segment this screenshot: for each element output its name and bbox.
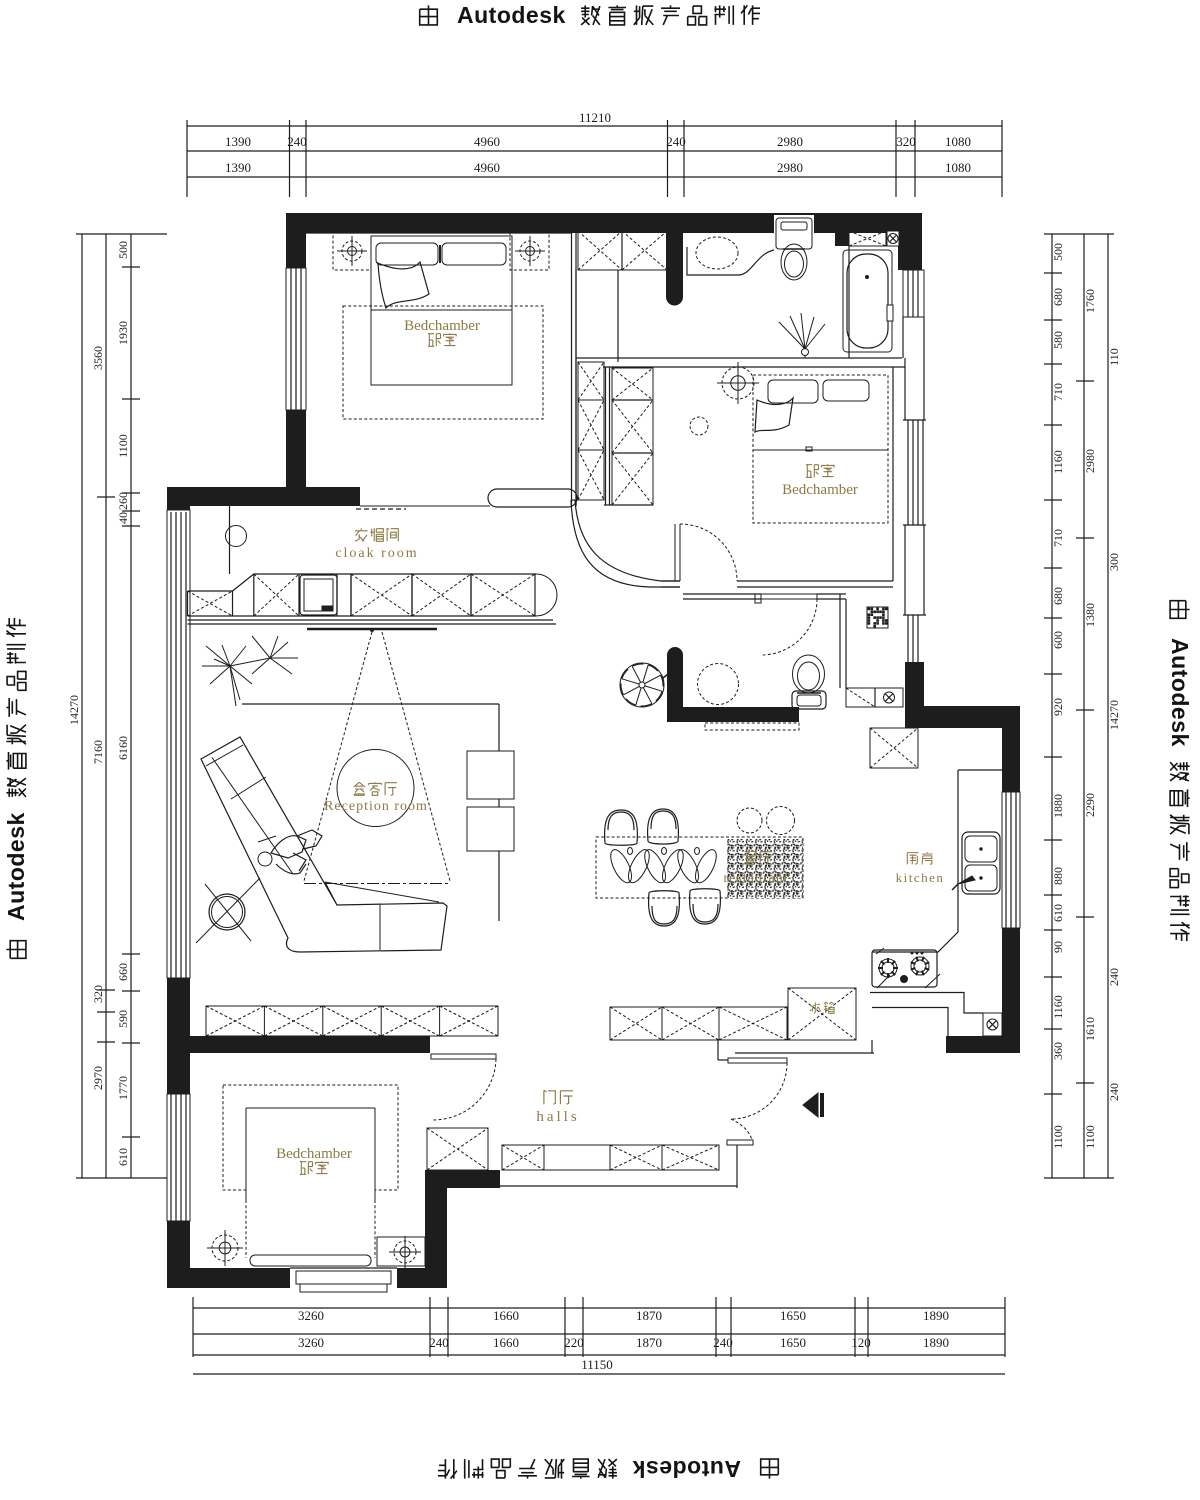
svg-text:1930: 1930	[116, 321, 130, 345]
svg-text:240: 240	[1107, 1083, 1121, 1101]
svg-text:590: 590	[116, 1010, 130, 1028]
svg-text:1650: 1650	[780, 1308, 806, 1323]
svg-text:320: 320	[91, 985, 105, 1003]
svg-text:240: 240	[713, 1335, 733, 1350]
svg-text:restaurant: restaurant	[723, 871, 788, 886]
svg-text:320: 320	[896, 134, 916, 149]
svg-text:1890: 1890	[923, 1335, 949, 1350]
svg-text:500: 500	[1051, 243, 1065, 261]
svg-text:Bedchamber: Bedchamber	[276, 1146, 352, 1162]
svg-text:610: 610	[116, 1148, 130, 1166]
svg-text:1660: 1660	[493, 1335, 519, 1350]
svg-text:Reception room: Reception room	[324, 799, 428, 814]
svg-text:Autodesk: Autodesk	[632, 1456, 741, 1482]
svg-text:240: 240	[666, 134, 686, 149]
svg-text:1080: 1080	[945, 134, 971, 149]
svg-text:2980: 2980	[1083, 449, 1097, 473]
svg-text:11210: 11210	[579, 110, 611, 125]
svg-text:500: 500	[116, 241, 130, 259]
svg-text:Autodesk: Autodesk	[457, 2, 566, 28]
svg-text:1870: 1870	[636, 1335, 662, 1350]
svg-text:2980: 2980	[777, 160, 803, 175]
svg-text:40: 40	[116, 512, 130, 524]
svg-text:6160: 6160	[116, 736, 130, 760]
svg-text:1610: 1610	[1083, 1017, 1097, 1041]
svg-text:880: 880	[1051, 867, 1065, 885]
svg-text:11150: 11150	[581, 1357, 613, 1372]
svg-text:660: 660	[116, 963, 130, 981]
svg-text:260: 260	[116, 492, 130, 510]
svg-text:2290: 2290	[1083, 793, 1097, 817]
svg-text:580: 580	[1051, 331, 1065, 349]
svg-text:90: 90	[1051, 941, 1065, 953]
svg-text:240: 240	[429, 1335, 449, 1350]
svg-text:680: 680	[1051, 288, 1065, 306]
svg-text:1080: 1080	[945, 160, 971, 175]
svg-text:7160: 7160	[91, 740, 105, 764]
svg-text:14270: 14270	[1107, 700, 1121, 730]
svg-text:Autodesk: Autodesk	[1167, 638, 1193, 747]
svg-text:1390: 1390	[225, 160, 251, 175]
svg-text:1380: 1380	[1083, 603, 1097, 627]
svg-text:300: 300	[1107, 553, 1121, 571]
svg-text:1880: 1880	[1051, 794, 1065, 818]
svg-text:220: 220	[564, 1335, 584, 1350]
svg-text:14270: 14270	[67, 695, 81, 725]
svg-text:4960: 4960	[474, 160, 500, 175]
svg-text:1870: 1870	[636, 1308, 662, 1323]
svg-text:2970: 2970	[91, 1066, 105, 1090]
svg-text:920: 920	[1051, 698, 1065, 716]
svg-text:1650: 1650	[780, 1335, 806, 1350]
svg-text:240: 240	[1107, 968, 1121, 986]
svg-text:680: 680	[1051, 587, 1065, 605]
svg-text:1390: 1390	[225, 134, 251, 149]
svg-text:710: 710	[1051, 529, 1065, 547]
svg-text:kitchen: kitchen	[896, 870, 945, 885]
svg-text:3260: 3260	[298, 1308, 324, 1323]
svg-text:360: 360	[1051, 1042, 1065, 1060]
svg-text:Bedchamber: Bedchamber	[404, 318, 480, 334]
svg-text:1160: 1160	[1051, 995, 1065, 1019]
svg-text:Bedchamber: Bedchamber	[782, 482, 858, 498]
svg-text:1100: 1100	[116, 434, 130, 458]
svg-text:240: 240	[287, 134, 307, 149]
svg-text:120: 120	[851, 1335, 871, 1350]
svg-text:1100: 1100	[1083, 1125, 1097, 1149]
svg-text:1160: 1160	[1051, 450, 1065, 474]
svg-text:1760: 1760	[1083, 289, 1097, 313]
svg-text:cloak room: cloak room	[335, 546, 418, 561]
svg-text:610: 610	[1051, 904, 1065, 922]
svg-text:halls: halls	[536, 1109, 579, 1125]
svg-text:110: 110	[1107, 348, 1121, 366]
svg-text:600: 600	[1051, 631, 1065, 649]
svg-text:710: 710	[1051, 383, 1065, 401]
svg-text:Autodesk: Autodesk	[3, 812, 29, 921]
svg-text:3260: 3260	[298, 1335, 324, 1350]
svg-text:1660: 1660	[493, 1308, 519, 1323]
svg-text:3560: 3560	[91, 346, 105, 370]
svg-text:2980: 2980	[777, 134, 803, 149]
svg-text:1770: 1770	[116, 1076, 130, 1100]
svg-text:4960: 4960	[474, 134, 500, 149]
svg-text:1890: 1890	[923, 1308, 949, 1323]
svg-text:1100: 1100	[1051, 1125, 1065, 1149]
